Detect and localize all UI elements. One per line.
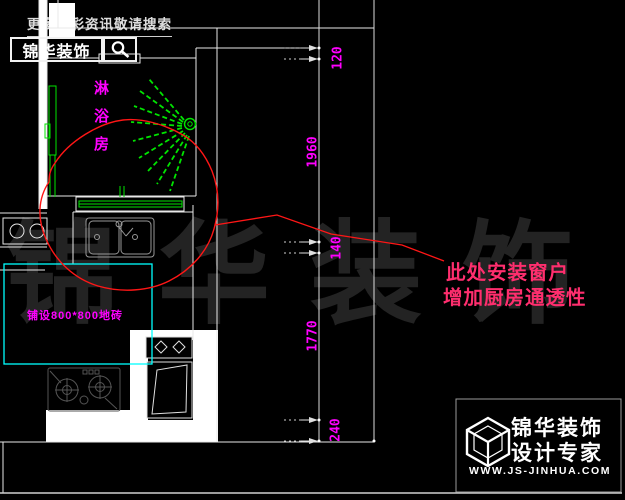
gas-stove: [48, 368, 120, 411]
dimension-label-1770: 1770: [306, 320, 321, 351]
room-label-char: 房: [94, 137, 109, 152]
dimension-label-140: 140: [330, 236, 345, 259]
footer-brand-line2: 设计专家: [511, 437, 603, 467]
magnifier-icon: [109, 40, 131, 59]
dimension-label-1960: 1960: [306, 136, 321, 167]
dimension-lines: [319, 0, 374, 442]
search-icon-box: [103, 37, 137, 62]
shower-head: [131, 79, 196, 191]
hexagon-cube-logo-icon: [463, 415, 513, 467]
header-logo-box: 锦华装饰: [10, 37, 103, 62]
dimension-label-120: 120: [331, 46, 346, 69]
appliance-box: [146, 337, 192, 358]
floor-tile-note: 铺设800*800地砖: [27, 307, 123, 323]
room-label-shower: 淋 浴 房: [94, 81, 109, 152]
dimension-label-240: 240: [329, 418, 344, 441]
door-swing-panel: [147, 362, 192, 418]
room-label-char: 淋: [94, 81, 109, 96]
footer-brand-url: WWW.JS-JINHUA.COM: [469, 465, 611, 477]
cad-floorplan-screenshot: 锦华装饰 更多精彩资讯敬请搜索: [0, 0, 625, 500]
header-logo-text: 锦华装饰: [22, 38, 90, 62]
annotation-text-line2: 增加厨房通透性: [443, 281, 587, 310]
room-label-char: 浴: [94, 109, 109, 124]
spray-lines: [131, 79, 189, 191]
kitchen-sink: [86, 218, 154, 257]
